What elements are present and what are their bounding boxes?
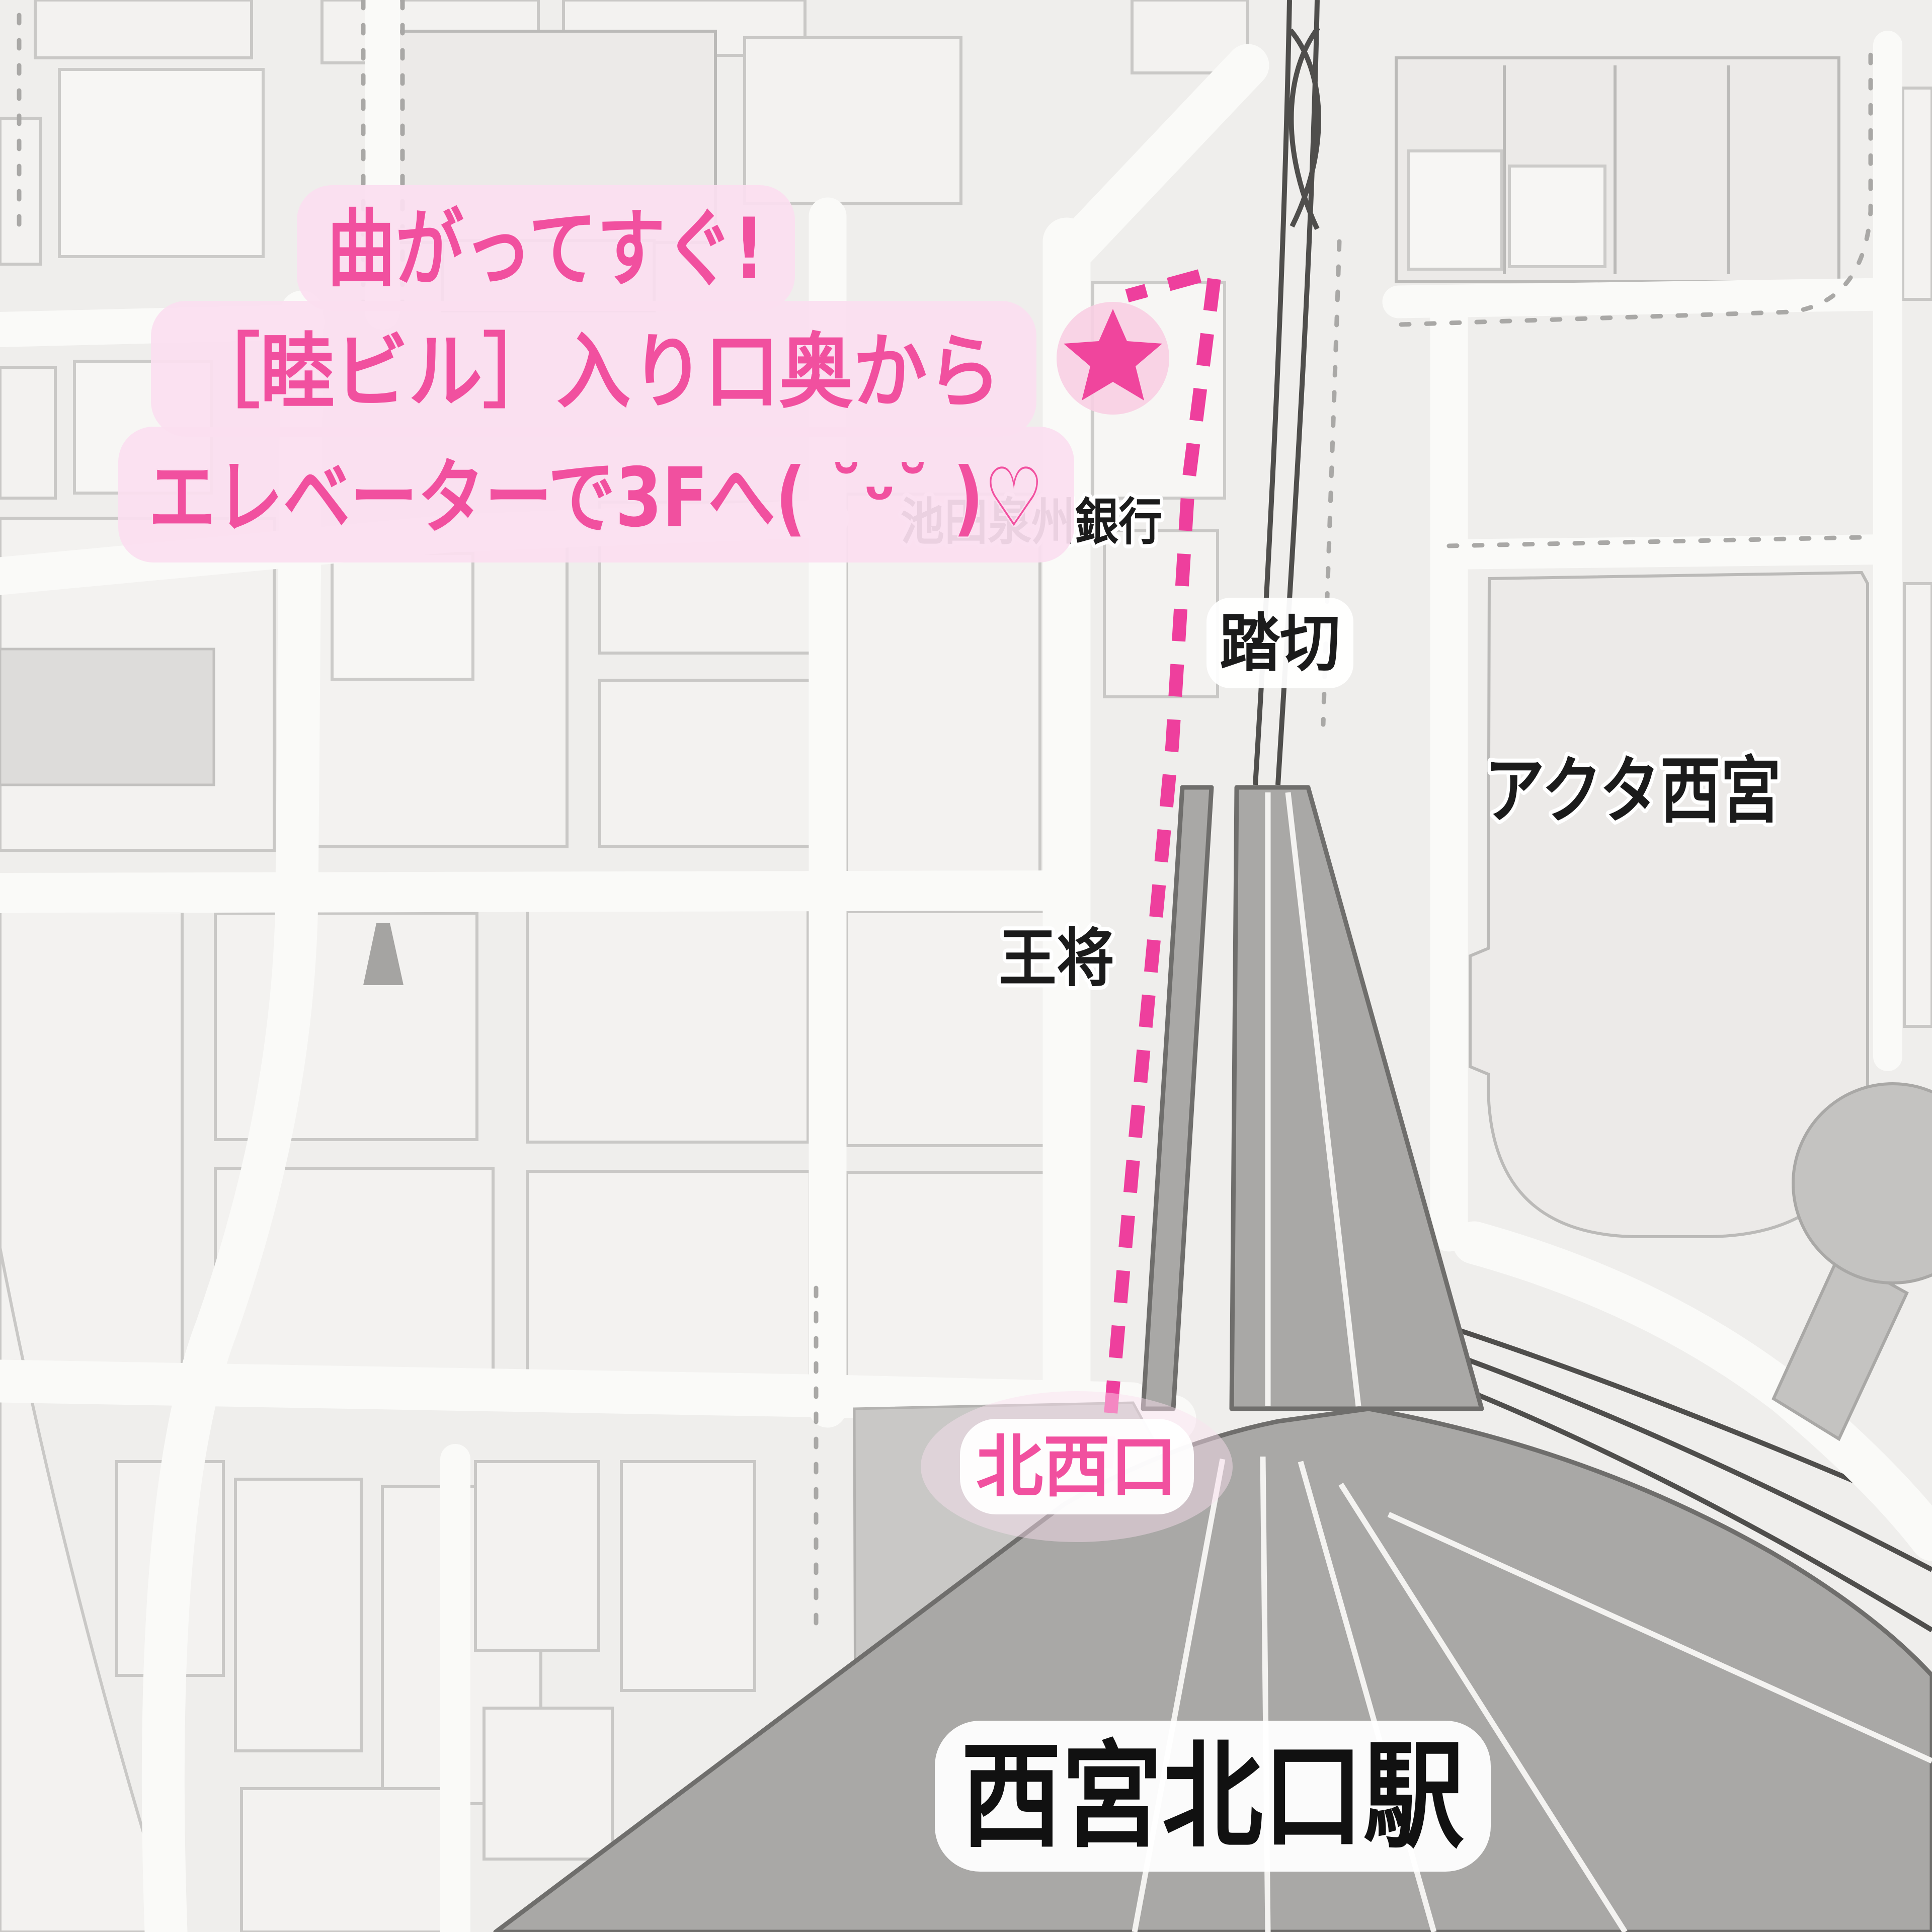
road xyxy=(1399,294,1882,302)
label-osho: 王将 xyxy=(999,922,1114,995)
city-block xyxy=(242,1789,453,1932)
city-block xyxy=(35,0,252,58)
city-block xyxy=(332,553,473,679)
annotation-text-line3: エレベーターで3Fへ( ˘ᵕ˘ )♡ xyxy=(148,451,1044,545)
city-block xyxy=(846,1172,1058,1391)
city-block xyxy=(600,680,816,846)
city-block xyxy=(0,912,182,1377)
city-block xyxy=(1509,166,1605,267)
station-name: 西宮北口駅 xyxy=(935,1721,1491,1872)
road xyxy=(1449,549,1884,554)
city-block xyxy=(1904,584,1932,1026)
city-block xyxy=(527,1171,810,1399)
road xyxy=(0,891,1067,893)
label-acta: アクタ西宮 xyxy=(1484,749,1781,834)
city-block xyxy=(527,897,808,1142)
city-block-compound xyxy=(1396,58,1839,282)
label-crossing: 踏切 xyxy=(1220,607,1340,680)
city-block xyxy=(235,1479,361,1751)
annotation-text-line2: ［睦ビル］入り口奥から xyxy=(186,325,1001,420)
northwest-exit: 北西口 xyxy=(921,1391,1233,1542)
city-block xyxy=(0,649,214,785)
city-block xyxy=(59,69,263,257)
label-northwest-exit: 北西口 xyxy=(976,1427,1177,1506)
city-block xyxy=(484,1708,612,1859)
city-block xyxy=(1903,88,1932,299)
city-block xyxy=(1409,151,1502,269)
map-canvas: 池田泉州銀行 踏切 アクタ西宮 王将 曲がってすぐ! ［睦ビル］入り口奥から エ… xyxy=(0,0,1932,1932)
city-block xyxy=(0,367,55,498)
city-block xyxy=(621,1462,755,1691)
city-block xyxy=(1104,531,1218,697)
city-block xyxy=(475,1462,599,1650)
annotation-text-line1: 曲がってすぐ! xyxy=(327,200,765,298)
access-map: 池田泉州銀行 踏切 アクタ西宮 王将 曲がってすぐ! ［睦ビル］入り口奥から エ… xyxy=(0,0,1932,1932)
road xyxy=(0,1381,1132,1404)
label-station: 西宮北口駅 xyxy=(961,1730,1464,1864)
city-block xyxy=(745,38,961,204)
